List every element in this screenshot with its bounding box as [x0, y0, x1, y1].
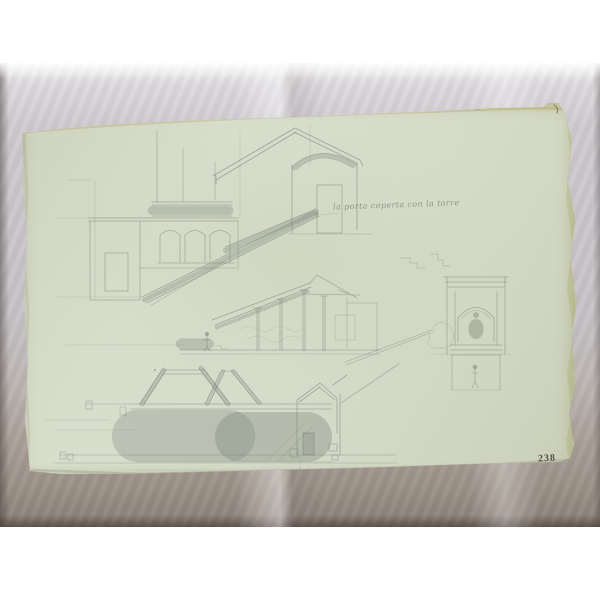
sketch-paper: la porta coperta con la torre 238 [20, 103, 578, 477]
fabric-backdrop: la porta coperta con la torre 238 [0, 63, 600, 527]
page-number: 238 [538, 453, 557, 465]
photo-of-drawing: la porta coperta con la torre 238 [0, 0, 600, 600]
pencil-sketch-drawing [20, 103, 578, 477]
